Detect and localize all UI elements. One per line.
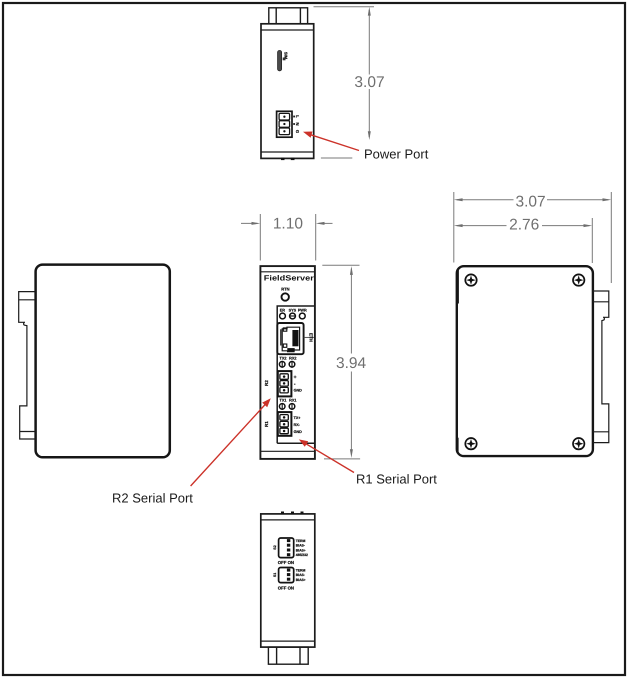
svg-text:OFF ON: OFF ON xyxy=(278,560,294,565)
svg-text:GND: GND xyxy=(294,389,303,393)
svg-text:TX2: TX2 xyxy=(280,356,287,360)
svg-text:RX2: RX2 xyxy=(289,356,296,360)
svg-text:TX+: TX+ xyxy=(294,416,301,420)
svg-text:SYS: SYS xyxy=(289,309,297,313)
svg-text:TX1: TX1 xyxy=(280,399,287,403)
svg-text:OFF ON: OFF ON xyxy=(278,586,294,591)
svg-text:RX-: RX- xyxy=(294,423,301,427)
svg-text:485/232: 485/232 xyxy=(296,553,308,557)
svg-text:BIAS+: BIAS+ xyxy=(296,578,306,582)
svg-text:FieldServer: FieldServer xyxy=(264,273,314,282)
svg-text:RX1: RX1 xyxy=(289,399,296,403)
svg-text:ETH: ETH xyxy=(308,333,313,342)
svg-text:Power Port: Power Port xyxy=(364,146,429,161)
svg-text:R2 Serial Port: R2 Serial Port xyxy=(112,491,193,506)
svg-text:BIAS+: BIAS+ xyxy=(296,548,306,552)
svg-text:R1: R1 xyxy=(264,421,269,427)
svg-text:3.07: 3.07 xyxy=(516,193,546,210)
svg-text:GND: GND xyxy=(294,430,303,434)
svg-text:RTN: RTN xyxy=(281,286,289,291)
svg-text:+: + xyxy=(294,375,297,381)
svg-text:ER: ER xyxy=(280,309,286,313)
svg-text:N: N xyxy=(295,122,300,125)
svg-text:3.94: 3.94 xyxy=(336,355,367,372)
svg-text:BIAS-: BIAS- xyxy=(296,544,305,548)
svg-text:S2: S2 xyxy=(273,545,277,549)
svg-text:G: G xyxy=(295,130,300,133)
svg-text:2.76: 2.76 xyxy=(509,216,539,233)
svg-text:TERM: TERM xyxy=(296,568,306,572)
svg-text:R2: R2 xyxy=(264,380,269,386)
svg-text:S1: S1 xyxy=(273,573,277,577)
svg-text:R1 Serial Port: R1 Serial Port xyxy=(356,471,437,486)
svg-text:3.07: 3.07 xyxy=(354,74,384,91)
svg-text:PWR: PWR xyxy=(298,309,307,313)
svg-text:TERM: TERM xyxy=(296,539,306,543)
svg-text:BIAS-: BIAS- xyxy=(296,573,305,577)
svg-text:L: L xyxy=(295,115,300,118)
svg-text:1.10: 1.10 xyxy=(273,215,304,232)
